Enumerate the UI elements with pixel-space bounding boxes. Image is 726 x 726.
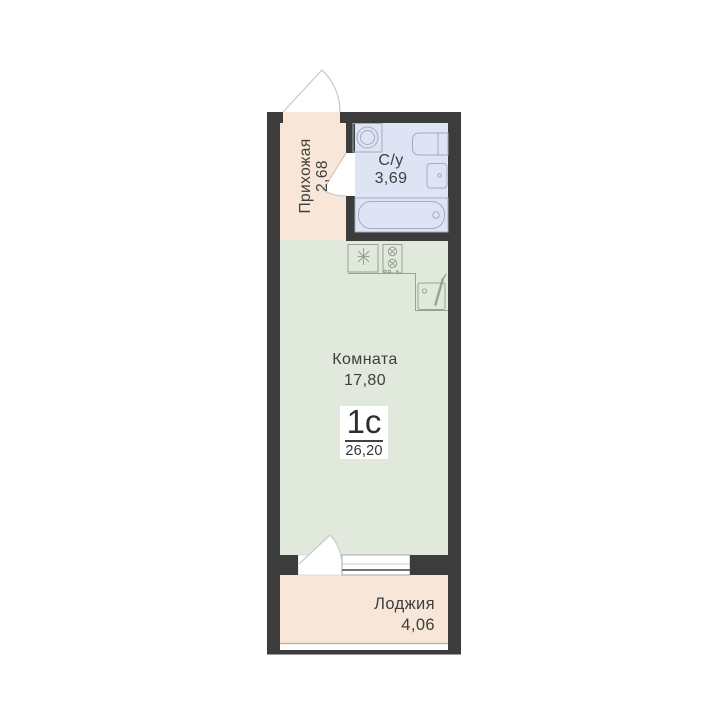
loggia-label: Лоджия 4,06 <box>374 594 435 635</box>
wall-bath-west-upper <box>346 123 355 153</box>
bathroom-name: С/у <box>375 152 408 170</box>
hallway-label: Прихожая 2,68 <box>297 138 331 213</box>
room-area: 17,80 <box>332 371 397 392</box>
room-floor <box>280 240 448 555</box>
unit-type: 1с <box>347 406 382 437</box>
room-label: Комната 17,80 <box>332 350 397 392</box>
unit-type-badge: 1с 26,20 <box>340 406 388 459</box>
room-name: Комната <box>332 350 397 371</box>
wall-bath-west-lower <box>346 196 355 232</box>
unit-total-area: 26,20 <box>345 443 382 459</box>
wall-bottom-right <box>410 555 461 575</box>
wall-bath-south <box>346 232 461 241</box>
hallway-area: 2,68 <box>314 138 331 213</box>
window-icon <box>342 555 410 575</box>
bathroom-area: 3,69 <box>375 170 408 188</box>
loggia-outer-rail <box>280 650 448 655</box>
badge-divider <box>345 440 383 442</box>
wall-top-right <box>340 112 461 123</box>
bathroom-label: С/у 3,69 <box>375 152 408 188</box>
entry-door-swing-icon <box>283 70 340 112</box>
wall-top-left <box>267 112 283 123</box>
hallway-name: Прихожая <box>297 138 314 213</box>
loggia-name: Лоджия <box>374 594 435 615</box>
wall-bottom-left <box>267 555 298 575</box>
loggia-area: 4,06 <box>374 615 435 636</box>
